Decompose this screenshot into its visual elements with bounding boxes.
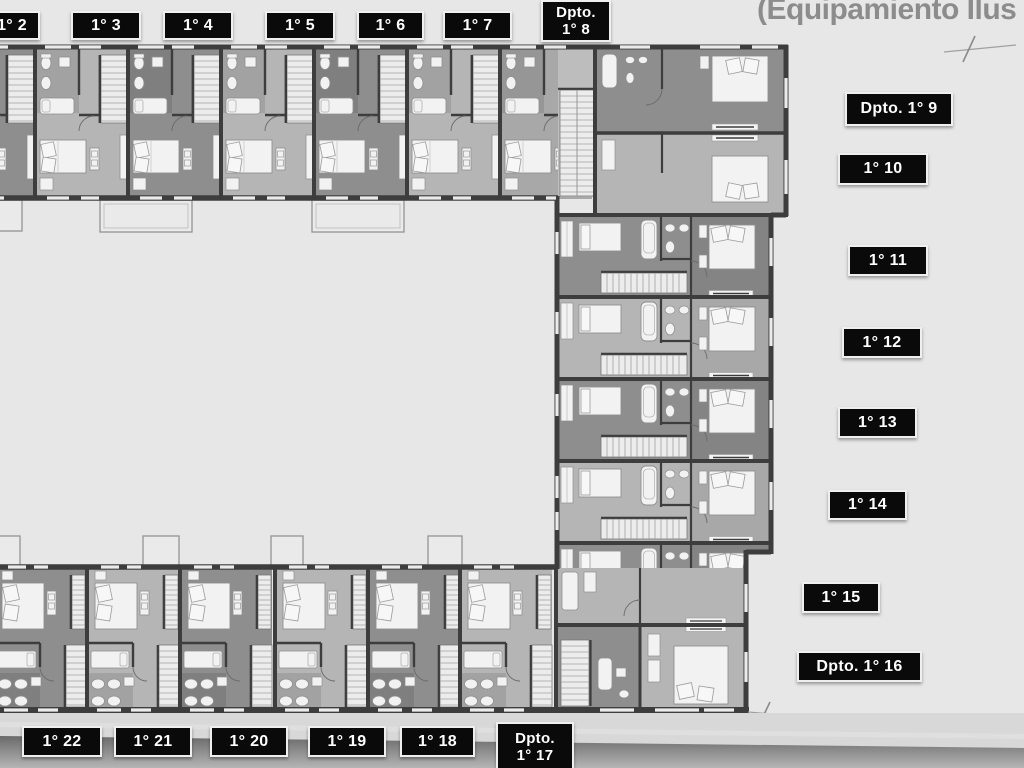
- apt-label-1-13: 1° 13: [838, 407, 917, 438]
- dimension-tick-northeast: [944, 36, 1016, 62]
- apt-label-1-21: 1° 21: [114, 726, 192, 757]
- apt-label-1-7: 1° 7: [443, 11, 512, 40]
- apt-label-1-5: 1° 5: [265, 11, 335, 40]
- corner-southeast: [558, 568, 746, 709]
- apt-label-1-6: 1° 6: [357, 11, 424, 40]
- apt-label-1-15: 1° 15: [802, 582, 880, 613]
- apt-label-line: 1° 8: [562, 21, 590, 38]
- floor-plan-page: (Equipamiento Ilus 1° 2 1° 3 1° 4 1° 5 1…: [0, 0, 1024, 768]
- apt-label-dpto-1-16: Dpto. 1° 16: [797, 651, 922, 682]
- apt-label-1-19: 1° 19: [308, 726, 386, 757]
- apt-label-1-11: 1° 11: [848, 245, 928, 276]
- apt-label-1-18: 1° 18: [400, 726, 475, 757]
- apt-label-1-12: 1° 12: [842, 327, 922, 358]
- apt-label-line: Dpto.: [556, 4, 596, 21]
- corner-northeast: [558, 47, 786, 215]
- apt-label-line: Dpto.: [515, 730, 555, 747]
- apt-label-dpto-1-9: Dpto. 1° 9: [845, 92, 953, 126]
- apt-label-1-20: 1° 20: [210, 726, 288, 757]
- apt-label-dpto-1-17: Dpto. 1° 17: [496, 722, 574, 768]
- apt-label-1-4: 1° 4: [163, 11, 233, 40]
- apt-label-1-22: 1° 22: [22, 726, 102, 757]
- top-wing: [0, 46, 592, 199]
- page-title: (Equipamiento Ilus: [757, 0, 1016, 27]
- apt-label-line: 1° 17: [517, 747, 554, 764]
- apt-label-1-3: 1° 3: [71, 11, 141, 40]
- apt-label-1-2: 1° 2: [0, 11, 40, 40]
- apt-label-1-14: 1° 14: [828, 490, 907, 520]
- apt-label-dpto-1-8: Dpto. 1° 8: [541, 0, 611, 42]
- apt-label-1-10: 1° 10: [838, 153, 928, 185]
